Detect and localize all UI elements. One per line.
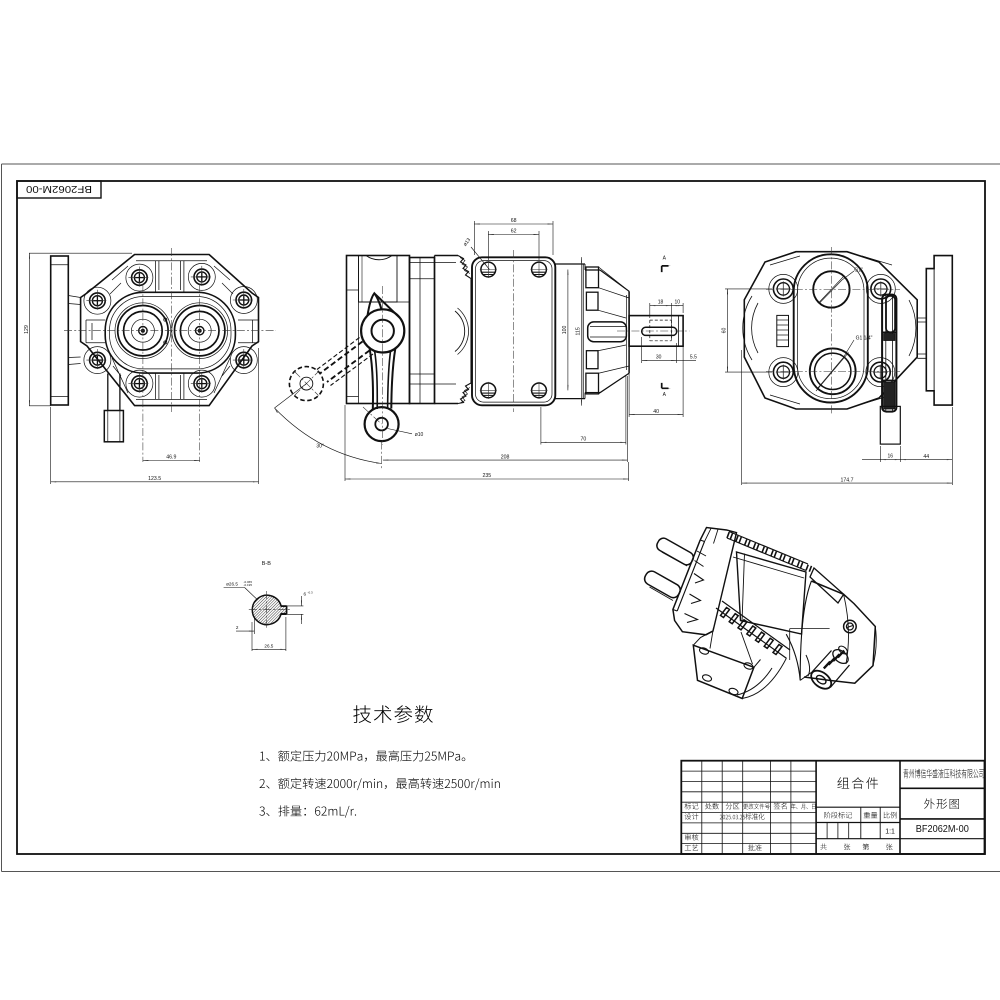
svg-text:62: 62 (511, 229, 517, 235)
svg-text:ø13: ø13 (462, 237, 472, 248)
svg-text:10: 10 (675, 300, 681, 306)
svg-text:-0.3: -0.3 (308, 591, 314, 595)
svg-text:26.5: 26.5 (264, 644, 273, 649)
svg-text:2: 2 (236, 625, 239, 630)
svg-text:70: 70 (581, 437, 587, 443)
svg-text:BF2062M-00: BF2062M-00 (26, 183, 92, 195)
svg-text:1:1: 1:1 (885, 829, 895, 836)
svg-text:100: 100 (562, 325, 568, 334)
svg-text:60: 60 (722, 328, 728, 334)
svg-text:-0.195: -0.195 (244, 583, 253, 587)
svg-text:208: 208 (501, 454, 510, 460)
svg-text:5.5: 5.5 (690, 354, 697, 360)
svg-text:ø10: ø10 (415, 432, 424, 438)
svg-text:129: 129 (24, 325, 30, 334)
svg-text:115: 115 (576, 327, 582, 335)
svg-text:46.9: 46.9 (166, 455, 176, 461)
svg-text:40: 40 (653, 409, 659, 415)
svg-text:235: 235 (482, 473, 491, 479)
svg-text:174.7: 174.7 (841, 477, 854, 483)
svg-text:16: 16 (888, 454, 894, 460)
svg-text:G1 1/4": G1 1/4" (856, 336, 873, 342)
svg-text:B-B: B-B (262, 561, 272, 567)
svg-text:18: 18 (658, 300, 664, 306)
svg-text:A: A (663, 256, 667, 262)
svg-text:6: 6 (304, 592, 307, 597)
svg-text:ø26.5: ø26.5 (226, 581, 238, 586)
svg-text:44: 44 (923, 454, 929, 460)
svg-text:123.5: 123.5 (148, 476, 161, 482)
svg-text:30°: 30° (316, 443, 324, 449)
svg-text:BF2062M-00: BF2062M-00 (916, 823, 969, 835)
svg-text:68: 68 (511, 218, 517, 224)
svg-text:G1": G1" (854, 268, 863, 274)
svg-text:A: A (663, 392, 667, 398)
svg-text:30: 30 (656, 354, 662, 360)
